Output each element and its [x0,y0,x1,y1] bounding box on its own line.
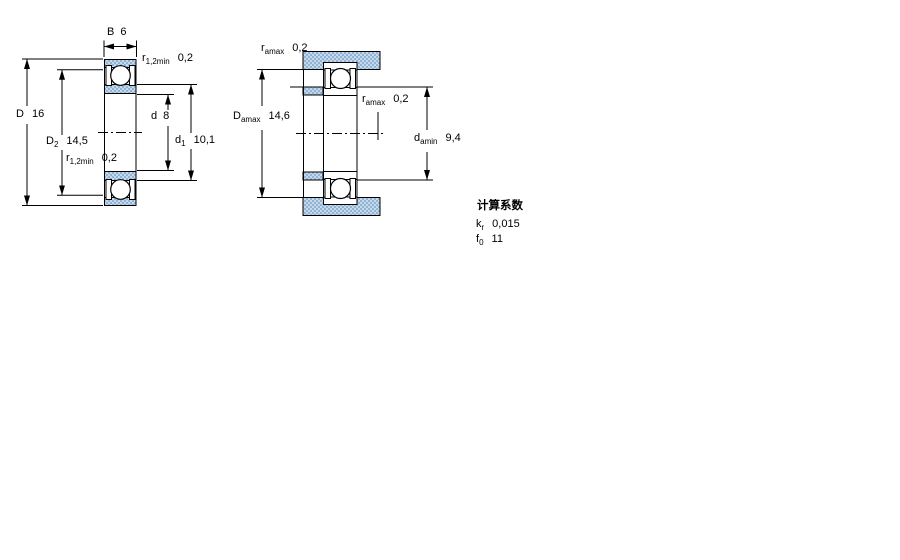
ball-top-right-diagram [331,69,351,89]
dim-label-shaft-fillet: ramax0,2 [360,93,411,106]
ball-bottom [111,180,131,200]
dim-label-outer-diameter: D16 [14,108,46,121]
shaft-shoulder-bottom [303,172,323,180]
factor-kr: kr0,015 [476,218,520,230]
shield-left-bottom-right-diagram [325,179,331,199]
technical-drawing-linework [0,0,900,560]
dim-label-fillet-top: r1,2min0,2 [142,52,193,65]
dim-label-shoulder-inner: d110,1 [173,134,217,147]
dim-label-shoulder-outer: D214,5 [44,135,90,148]
dim-label-bore: d8 [149,110,171,123]
dim-label-width: B6 [107,26,126,39]
shaft-shoulder-top [303,87,323,95]
shield-left-top-right-diagram [325,69,331,89]
dim-label-housing-fillet: ramax0,2 [261,42,308,55]
right-mounting-section [257,52,433,216]
dim-label-shaft-abutment: damin9,4 [412,132,463,145]
dim-label-housing-abutment: Damax14,6 [231,110,292,123]
bearing-dimension-drawing: B6 r1,2min0,2 D16 D214,5 r1,2min0,2 d8 d… [0,0,900,560]
factor-f0: f011 [476,233,503,245]
calculation-factors-title: 计算系数 [477,197,523,213]
dim-label-fillet-bottom: r1,2min0,2 [66,152,117,165]
ball-top [111,66,131,86]
left-bearing-section [22,41,197,206]
ball-bottom-right-diagram [331,179,351,199]
